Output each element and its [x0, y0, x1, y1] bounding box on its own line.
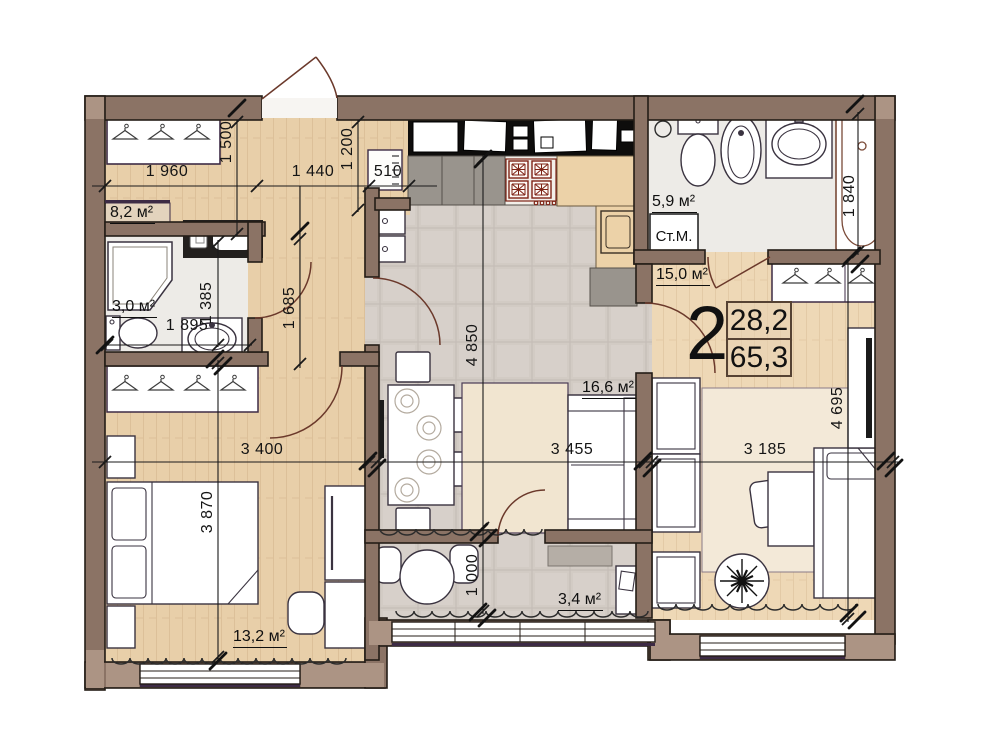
dim-hall-depth: 1 500	[219, 121, 235, 164]
dim-radiator-width: 510	[374, 164, 402, 180]
living-rug	[462, 383, 568, 533]
dim-hall-width: 1 960	[146, 164, 189, 180]
area-balcony: 3,4 м²	[558, 591, 603, 611]
dim-bedroom-right-width: 3 185	[744, 442, 787, 458]
dim-corridor-top-width: 1 440	[292, 164, 335, 180]
dim-bedroom-left-width: 3 400	[241, 442, 284, 458]
area-bedroom-right: 15,0 м²	[656, 266, 710, 286]
unit-living-area: 28,2	[728, 303, 790, 338]
dim-bath-small-depth: 1 385	[199, 282, 215, 325]
dim-corridor-height: 1 685	[282, 287, 298, 330]
dim-balcony-depth: 1 000	[465, 554, 481, 597]
right-shelving	[652, 378, 700, 608]
bedroom-wardrobe	[107, 366, 258, 412]
dim-bedroom-left-depth: 3 870	[200, 491, 216, 534]
unit-total-area: 65,3	[728, 338, 790, 375]
dim-bathtub-length: 1 840	[842, 175, 858, 218]
unit-area-box: 28,2 65,3	[726, 301, 792, 377]
sofa	[568, 395, 638, 535]
hallway-wardrobe	[107, 114, 220, 164]
unit-room-count: 2	[686, 299, 728, 369]
area-hallway: 8,2 м²	[110, 204, 155, 224]
dim-entry-depth: 1 200	[340, 128, 356, 171]
plant	[715, 554, 769, 608]
area-bathroom-small: 3,0 м²	[112, 298, 157, 318]
floor-plan-drawing	[0, 0, 1000, 750]
area-bedroom-left: 13,2 м²	[233, 628, 287, 648]
dim-living-depth: 4 850	[465, 324, 481, 367]
dim-bedroom-right-depth: 4 695	[830, 387, 846, 430]
dim-living-width: 3 455	[551, 442, 594, 458]
kitchen-cabinets	[408, 118, 640, 156]
washing-machine-label: Ст.М.	[650, 214, 698, 258]
area-kitchen-living: 16,6 м²	[582, 379, 636, 399]
floor-plan: 1 960 1 440 510 1 895 3 400 3 455 3 185 …	[0, 0, 1000, 750]
tv-console	[848, 328, 876, 448]
area-bathroom-large: 5,9 м²	[652, 193, 697, 213]
